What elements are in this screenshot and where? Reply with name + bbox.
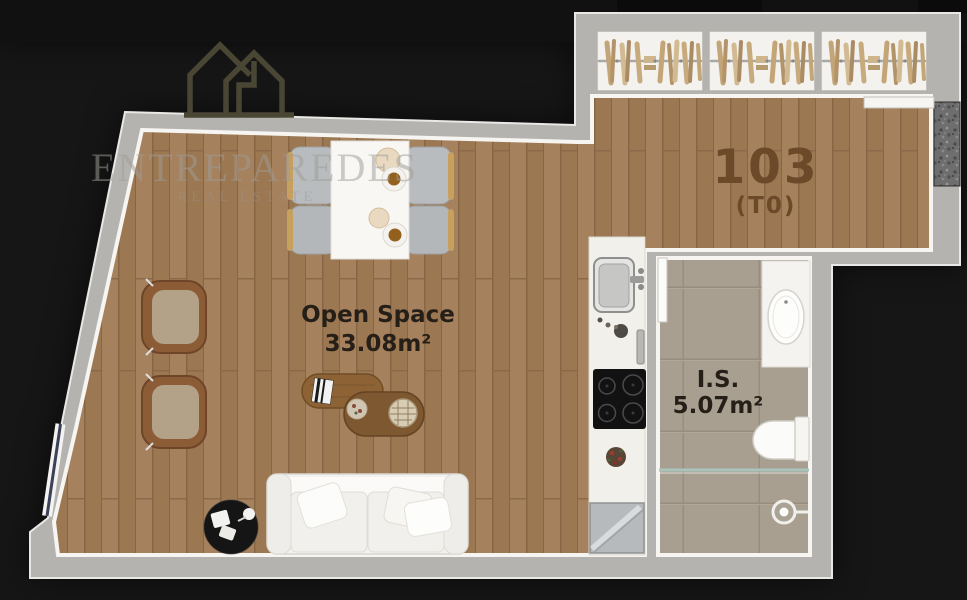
utensil-icon [637,330,644,364]
kitchen-counter [589,237,646,555]
floor-plan-page: ENTREPAREDES REAL ESTATE 103 (T0) Open S… [0,0,967,600]
armchair [142,279,206,355]
faucet-icon [630,276,644,283]
floor-plan-drawing [0,0,967,600]
dining-chair [405,147,451,204]
dining-chair [290,147,336,204]
book-icon [311,378,333,404]
dining-set [287,141,454,259]
exterior-notch [617,0,762,13]
counter-item [598,318,603,323]
toilet-icon [753,417,809,461]
pillow [403,496,452,537]
exterior-notch [918,0,967,13]
side-table [204,500,258,554]
entry-shelf [864,97,934,108]
plate-icon [347,399,367,419]
counter-item [606,323,611,328]
plate-icon [369,208,389,228]
sofa [267,474,468,554]
dining-chair [290,206,336,254]
armchair [142,374,206,450]
plant-icon [606,447,626,467]
door-leaf [658,258,667,322]
cooktop-icon [593,369,646,429]
refrigerator [590,503,644,553]
tray-icon [389,399,417,427]
dining-chair [405,206,451,254]
entry-granite-mat [934,102,960,186]
wardrobe-hangers-icon [597,31,927,91]
